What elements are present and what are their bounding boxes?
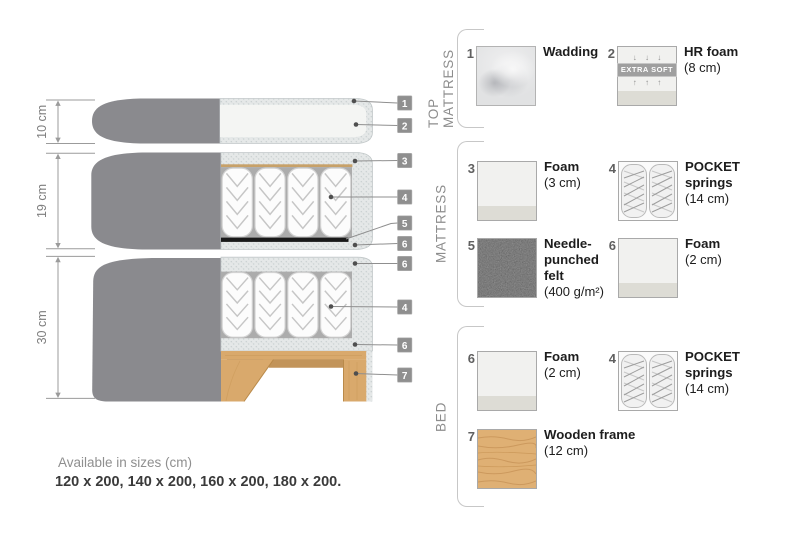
legend-item-felt: 5 Needle- punched felt (400 g/m²) — [462, 238, 604, 300]
arrows-up-icon: ↑ ↑ ↑ — [630, 78, 664, 87]
wadding-texture-swatch — [476, 46, 536, 106]
item-dimension: (14 cm) — [685, 381, 740, 397]
item-number: 7 — [462, 430, 475, 443]
item-number: 3 — [462, 162, 475, 175]
item-name: Wooden frame — [544, 427, 635, 443]
legend-item-pocket-springs-bed: 4 POCKET springs (14 — [603, 351, 740, 411]
item-name: Foam — [544, 159, 581, 175]
item-name: Foam — [685, 236, 722, 252]
item-name: Needle- punched felt — [544, 236, 604, 284]
item-number: 5 — [462, 239, 475, 252]
item-dimension: (8 cm) — [684, 60, 738, 76]
item-number: 2 — [602, 47, 615, 60]
legend-item-foam-2cm-bed: 6 Foam (2 cm) — [462, 351, 581, 411]
legend-item-wooden-frame: 7 Wooden frame — [462, 429, 635, 489]
item-number: 4 — [603, 162, 616, 175]
hr-foam-swatch: ↓ ↓ ↓ EXTRA SOFT ↑ ↑ ↑ — [617, 46, 677, 106]
sizes-title: Available in sizes (cm) — [58, 455, 192, 470]
felt-texture-swatch — [477, 238, 537, 298]
item-dimension: (12 cm) — [544, 443, 635, 459]
foam-swatch — [477, 351, 537, 411]
section-label-bed: BED — [432, 326, 450, 507]
item-dimension: (14 cm) — [685, 191, 740, 207]
mattress-infographic: 10 cm 19 cm 30 cm — [0, 0, 800, 533]
sizes-values: 120 x 200, 140 x 200, 160 x 200, 180 x 2… — [55, 474, 341, 490]
wood-texture-swatch — [477, 429, 537, 489]
pocket-springs-illustration — [619, 162, 677, 220]
foam-swatch — [618, 238, 678, 298]
item-dimension: (2 cm) — [544, 365, 581, 381]
item-name: HR foam — [684, 44, 738, 60]
legend: TOP MATTRESS MATTRESS BED 1 Wadding 2 ↓ … — [0, 0, 800, 533]
item-name: POCKET springs — [685, 349, 740, 381]
item-number: 6 — [462, 352, 475, 365]
item-name: Wadding — [543, 44, 598, 60]
wood-grain-illustration — [478, 430, 536, 488]
pocket-springs-swatch — [618, 161, 678, 221]
arrows-down-icon: ↓ ↓ ↓ — [630, 53, 664, 62]
section-label-mattress: MATTRESS — [432, 141, 450, 307]
item-name: Foam — [544, 349, 581, 365]
legend-item-hr-foam: 2 ↓ ↓ ↓ EXTRA SOFT ↑ ↑ ↑ HR foam (8 cm) — [602, 46, 738, 106]
legend-item-foam-3cm: 3 Foam (3 cm) — [462, 161, 581, 221]
extra-soft-badge: EXTRA SOFT — [617, 63, 677, 77]
pocket-springs-swatch — [618, 351, 678, 411]
item-dimension: (400 g/m²) — [544, 284, 604, 300]
legend-item-pocket-springs: 4 POCKET springs (14 — [603, 161, 740, 221]
foam-swatch — [477, 161, 537, 221]
item-dimension: (3 cm) — [544, 175, 581, 191]
felt-noise-illustration — [478, 239, 536, 297]
item-name: POCKET springs — [685, 159, 740, 191]
legend-item-foam-2cm: 6 Foam (2 cm) — [603, 238, 722, 298]
item-number: 1 — [461, 47, 474, 60]
item-number: 6 — [603, 239, 616, 252]
legend-item-wadding: 1 Wadding — [461, 46, 598, 106]
item-dimension: (2 cm) — [685, 252, 722, 268]
pocket-springs-illustration — [619, 352, 677, 410]
section-label-top-mattress: TOP MATTRESS — [432, 29, 450, 128]
item-number: 4 — [603, 352, 616, 365]
